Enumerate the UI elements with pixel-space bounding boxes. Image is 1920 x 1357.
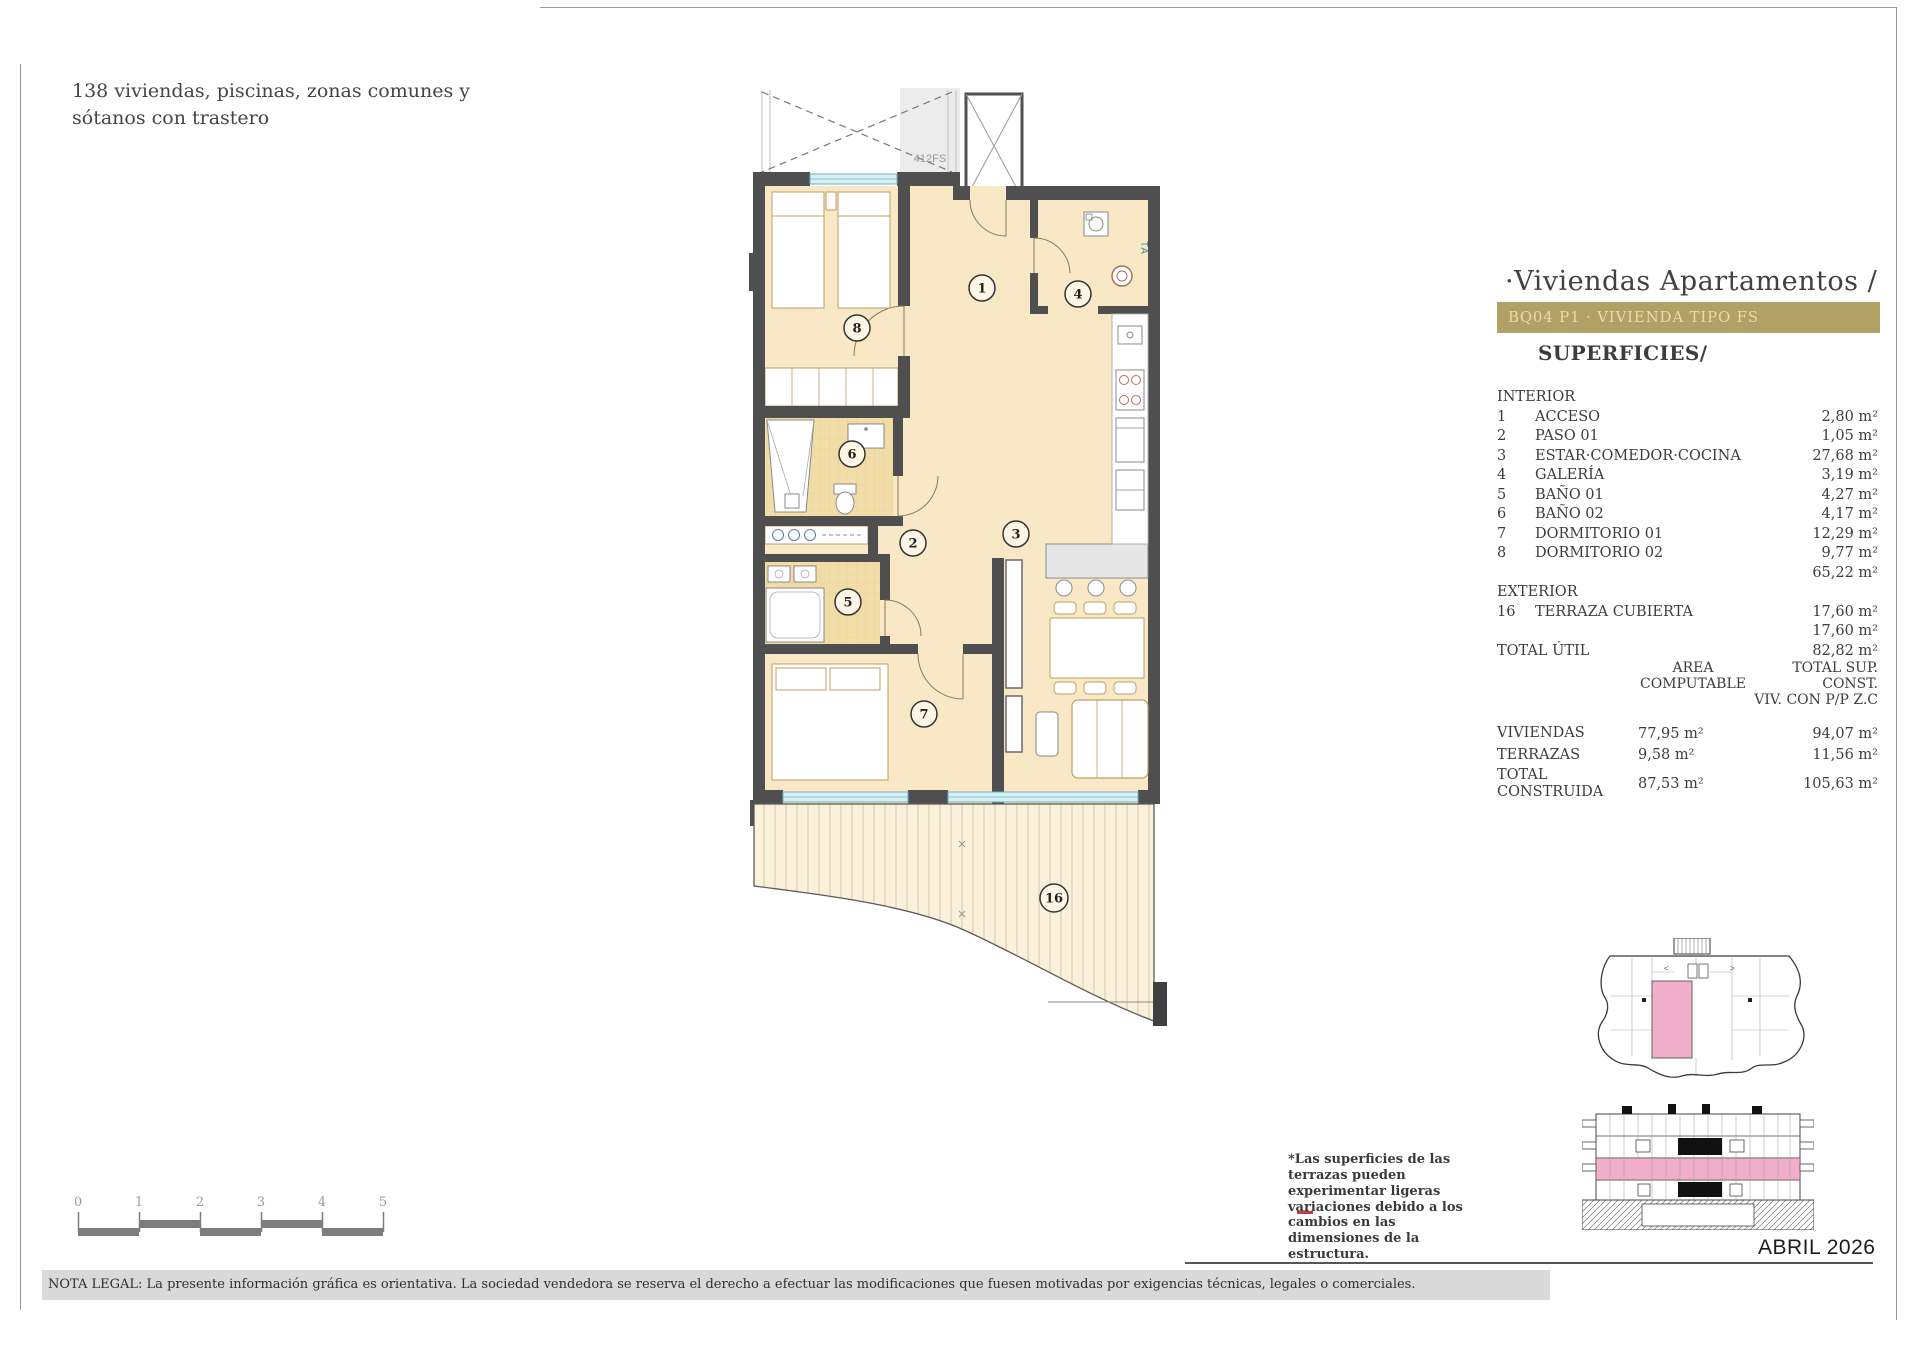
built-area-rows: VIVIENDAS 77,95 m² 94,07 m² TERRAZAS 9,5… [1497, 724, 1878, 801]
highlighted-floor [1596, 1158, 1800, 1180]
room-circle-terraza: 16 [1045, 892, 1063, 907]
col1-header-line2: COMPUTABLE [1640, 676, 1746, 692]
key-plan-drawing: < > [1592, 938, 1807, 1086]
row-num: 16 [1497, 603, 1535, 623]
table-row: 5 BAÑO 01 4,27 m² [1497, 486, 1878, 506]
terrace-deck [754, 804, 1154, 1021]
table-row: 4 GALERÍA 3,19 m² [1497, 466, 1878, 486]
table-row: 16 TERRAZA CUBIERTA 17,60 m² [1497, 603, 1878, 623]
scale-number: 4 [318, 1195, 326, 1210]
row-num: 2 [1497, 427, 1535, 447]
floor-plan-drawing: 412FS [748, 88, 1172, 1032]
total-util-row: TOTAL ÚTIL 82,82 m² [1497, 642, 1878, 662]
table-row: 7 DORMITORIO 01 12,29 m² [1497, 525, 1878, 545]
table-row: TERRAZAS 9,58 m² 11,56 m² [1497, 746, 1878, 766]
bedroom1-bed [772, 664, 888, 780]
room-circle-estar: 3 [1011, 528, 1020, 543]
row-num: 6 [1497, 505, 1535, 525]
col2-header-line1: TOTAL SUP. CONST. [1792, 660, 1878, 692]
room-circle-bano2: 6 [847, 448, 856, 463]
row-name: DORMITORIO 01 [1535, 525, 1812, 545]
unit-code-label: 412FS [914, 153, 946, 165]
room-circle-paso: 2 [908, 537, 917, 552]
row-name: GALERÍA [1535, 466, 1822, 486]
exterior-subtotal-row: 17,60 m² [1497, 622, 1878, 642]
row-value: 17,60 m² [1812, 603, 1878, 623]
room-circle-acceso: 1 [977, 282, 986, 297]
highlighted-unit [1652, 981, 1692, 1058]
svg-text:>: > [1730, 964, 1735, 973]
exterior-subtotal: 17,60 m² [1812, 622, 1878, 642]
legal-note-text: NOTA LEGAL: La presente información gráf… [42, 1270, 1550, 1300]
row-value: 27,68 m² [1812, 447, 1878, 467]
room-circle-dorm1: 7 [919, 708, 928, 723]
row-name: DORMITORIO 02 [1535, 544, 1822, 564]
surfaces-title: SUPERFICIES/ [1538, 341, 1707, 365]
table-row: VIVIENDAS 77,95 m² 94,07 m² [1497, 724, 1878, 744]
kitchen-counter [1112, 314, 1148, 544]
page-title: ·Viviendas Apartamentos / [1505, 266, 1877, 297]
scale-bar-drawing: 0 1 2 3 4 5 [75, 1192, 387, 1242]
interior-subtotal-row: 65,22 m² [1497, 564, 1878, 584]
wardrobe [765, 368, 898, 406]
row-area: 77,95 m² [1638, 726, 1748, 742]
row-num: 5 [1497, 486, 1535, 506]
row-name: BAÑO 01 [1535, 486, 1822, 506]
building-section [1582, 1104, 1814, 1230]
built-area-table: AREA COMPUTABLE TOTAL SUP. CONST. VIV. C… [1497, 660, 1878, 801]
built-area-header: AREA COMPUTABLE TOTAL SUP. CONST. VIV. C… [1497, 660, 1878, 708]
svg-text:<: < [1664, 964, 1669, 973]
top-border-line [540, 7, 1896, 8]
row-value: 4,27 m² [1822, 486, 1878, 506]
floor-plan: 412FS [748, 88, 1172, 1032]
terrace-pillar [1153, 982, 1167, 1026]
unit-type-banner: BQ04 P1 · VIVIENDA TIPO FS [1497, 302, 1880, 333]
row-num: 1 [1497, 408, 1535, 428]
row-area: 9,58 m² [1638, 747, 1748, 763]
date-label: ABRIL 2026 [1758, 1236, 1875, 1260]
unit-type-banner-label: BQ04 P1 · VIVIENDA TIPO FS [1497, 302, 1880, 333]
legal-note-bar: NOTA LEGAL: La presente información gráf… [42, 1270, 1550, 1300]
row-value: 12,29 m² [1812, 525, 1878, 545]
terrace-footnote: *Las superficies de las terrazas pueden … [1288, 1152, 1490, 1263]
col1-header-line1: AREA [1673, 660, 1714, 676]
table-row: 1 ACCESO 2,80 m² [1497, 408, 1878, 428]
laundry-closet [765, 526, 868, 544]
total-util-value: 82,82 m² [1812, 642, 1878, 662]
table-row: 6 BAÑO 02 4,17 m² [1497, 505, 1878, 525]
right-border-line [1896, 7, 1897, 1320]
red-underline-mark [1297, 1211, 1313, 1214]
row-name: BAÑO 02 [1535, 505, 1822, 525]
laundry-tower-label: TA [1138, 241, 1149, 255]
project-description: 138 viviendas, piscinas, zonas comunes y… [72, 78, 502, 131]
row-area: 87,53 m² [1638, 776, 1748, 792]
table-row: 8 DORMITORIO 02 9,77 m² [1497, 544, 1878, 564]
table-row: 2 PASO 01 1,05 m² [1497, 427, 1878, 447]
total-util-label: TOTAL ÚTIL [1497, 642, 1812, 662]
row-num: 4 [1497, 466, 1535, 486]
interior-label: INTERIOR [1497, 388, 1878, 408]
row-name: ESTAR·COMEDOR·COCINA [1535, 447, 1812, 467]
row-num: 3 [1497, 447, 1535, 467]
row-value: 3,19 m² [1822, 466, 1878, 486]
room-circle-galeria: 4 [1073, 288, 1082, 303]
row-value: 9,77 m² [1822, 544, 1878, 564]
row-value: 2,80 m² [1822, 408, 1878, 428]
row-num: 8 [1497, 544, 1535, 564]
scale-segments [78, 1220, 383, 1236]
row-total: 105,63 m² [1748, 776, 1878, 792]
key-plan: < > [1592, 938, 1807, 1086]
row-label: TOTAL CONSTRUIDA [1497, 767, 1597, 801]
scale-bar: 0 1 2 3 4 5 [75, 1192, 387, 1242]
stair-tower [1674, 938, 1710, 954]
scale-number: 1 [135, 1195, 143, 1210]
left-border-line [20, 64, 21, 1310]
bath1-fixtures [766, 566, 824, 642]
building-section-drawing [1582, 1104, 1814, 1230]
scale-number: 5 [379, 1195, 387, 1210]
scale-numbers: 0 1 2 3 4 5 [75, 1195, 387, 1210]
room-circle-bano1: 5 [843, 596, 852, 611]
brochure-page: 138 viviendas, piscinas, zonas comunes y… [0, 0, 1920, 1357]
row-value: 1,05 m² [1822, 427, 1878, 447]
date-underline [1185, 1262, 1873, 1264]
row-name: ACCESO [1535, 408, 1822, 428]
col2-header-line2: VIV. CON P/P Z.C [1754, 692, 1878, 708]
table-row: 3 ESTAR·COMEDOR·COCINA 27,68 m² [1497, 447, 1878, 467]
row-num: 7 [1497, 525, 1535, 545]
scale-number: 0 [75, 1195, 82, 1210]
interior-subtotal: 65,22 m² [1812, 564, 1878, 584]
row-name: TERRAZA CUBIERTA [1535, 603, 1812, 623]
room-circle-dorm2: 8 [852, 322, 861, 337]
surfaces-table: INTERIOR 1 ACCESO 2,80 m² 2 PASO 01 1,05… [1497, 388, 1878, 661]
row-value: 4,17 m² [1822, 505, 1878, 525]
row-label: VIVIENDAS [1497, 725, 1597, 742]
row-label: TERRAZAS [1497, 747, 1597, 764]
exterior-label: EXTERIOR [1497, 583, 1878, 603]
row-total: 94,07 m² [1748, 726, 1878, 742]
table-row: TOTAL CONSTRUIDA 87,53 m² 105,63 m² [1497, 767, 1878, 801]
scale-number: 2 [196, 1195, 204, 1210]
row-name: PASO 01 [1535, 427, 1822, 447]
basement-core [1642, 1204, 1754, 1226]
row-total: 11,56 m² [1748, 747, 1878, 763]
scale-number: 3 [257, 1195, 265, 1210]
